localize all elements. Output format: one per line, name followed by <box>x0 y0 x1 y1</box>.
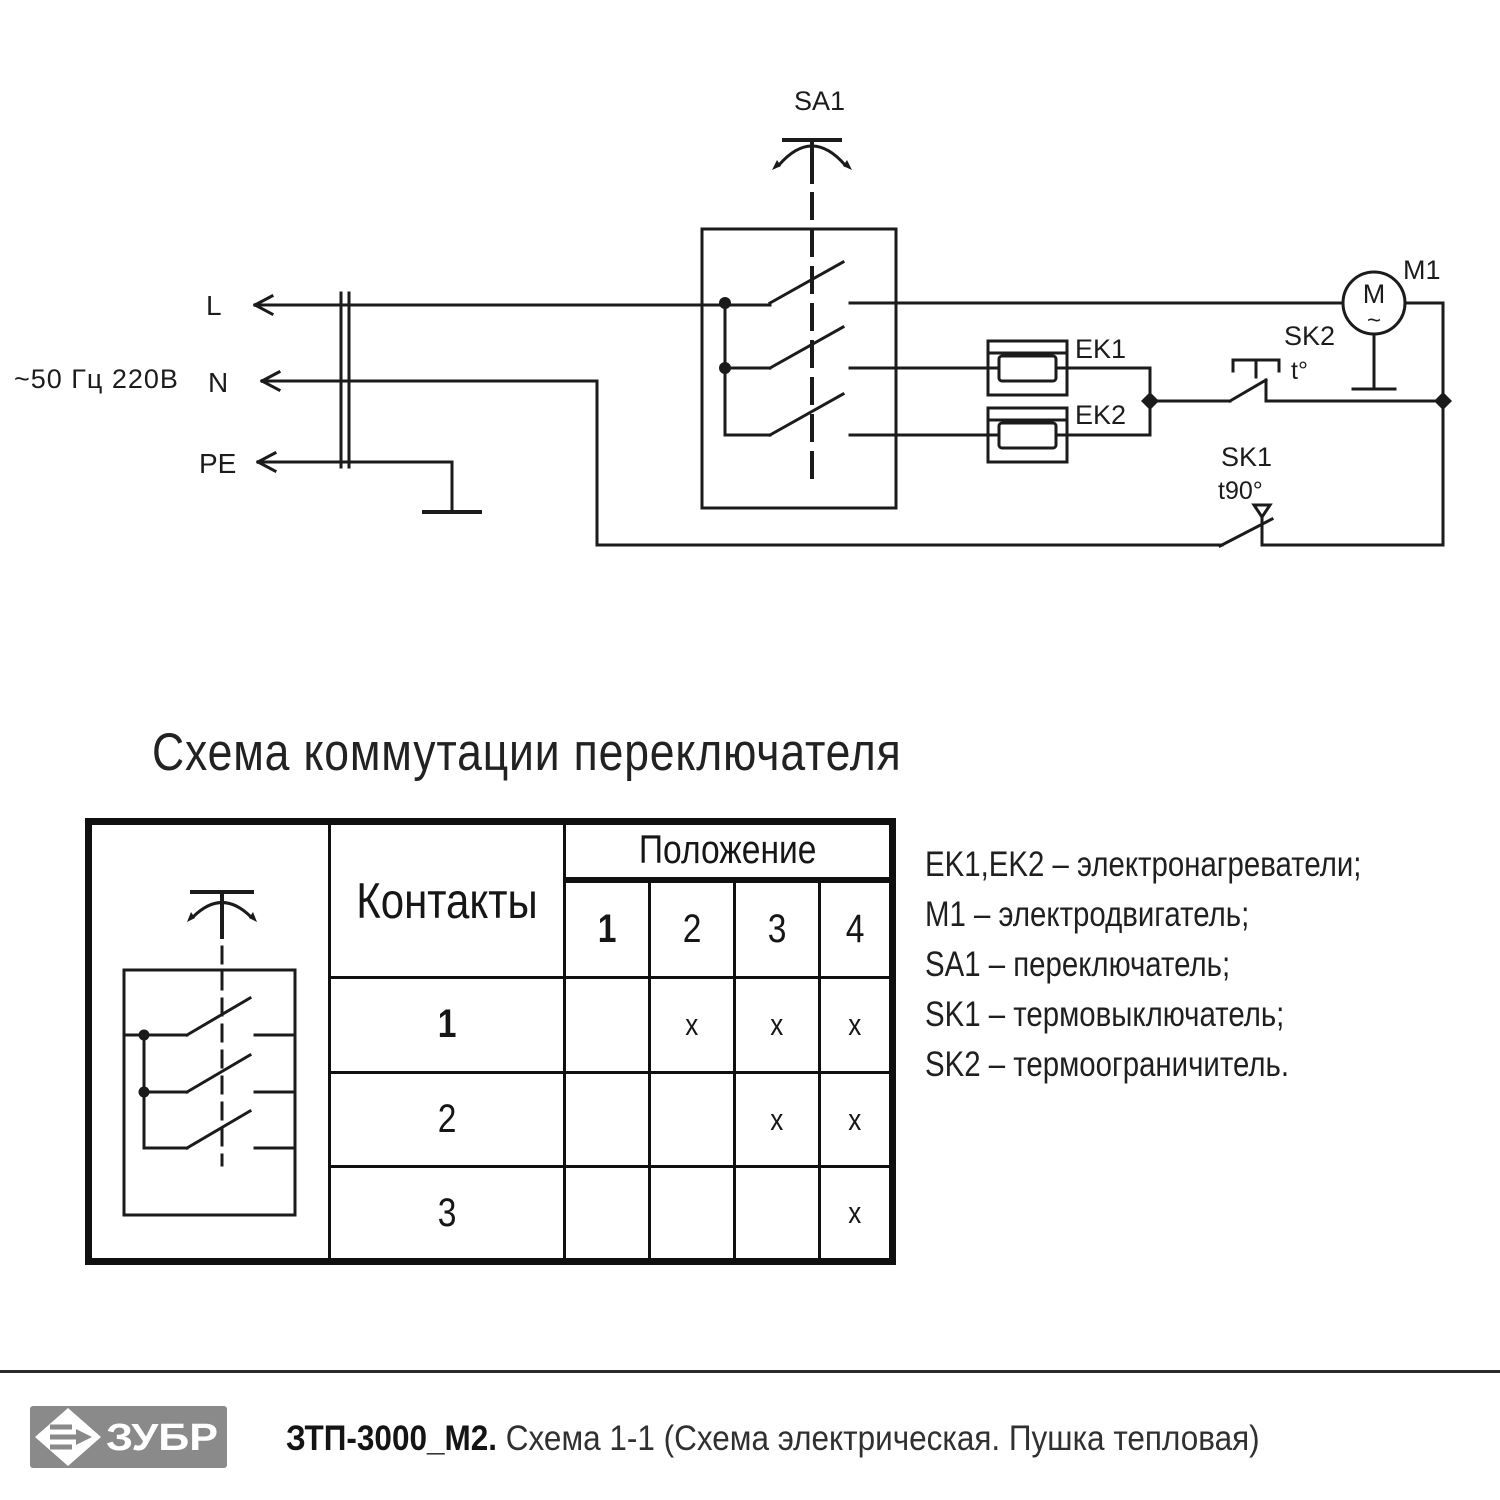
scheme-description: Схема 1-1 (Схема электрическая. Пушка те… <box>506 1419 1260 1458</box>
mark-cell: x <box>820 978 893 1073</box>
motor-ac-sign: ~ <box>1367 307 1381 334</box>
contact-row-label: 2 <box>330 1072 565 1167</box>
mark-cell: x <box>820 1167 893 1262</box>
sk1-temp-label: t90° <box>1218 477 1263 505</box>
legend-item: M1 – электродвигатель; <box>925 890 1445 940</box>
sk1-label: SK1 <box>1221 442 1272 472</box>
junction-right <box>1434 392 1452 410</box>
legend-item: SA1 – переключатель; <box>925 940 1445 990</box>
sk1-contact <box>1220 505 1443 546</box>
mark-cell <box>565 1167 650 1262</box>
mark-cell <box>650 1072 735 1167</box>
position-col-1: 1 <box>565 880 650 978</box>
ek1-label: EK1 <box>1075 334 1126 364</box>
mark-cell: x <box>735 1072 820 1167</box>
mini-switch-symbol <box>92 825 328 1253</box>
legend-item: EK1,EK2 – электронагреватели; <box>925 840 1445 890</box>
mark-cell: x <box>735 978 820 1073</box>
electrical-schematic: ~50 Гц 220В L N PE SA1 EK1 EK2 SK2 t° SK… <box>0 0 1500 710</box>
terminal-pe-label: PE <box>199 448 236 479</box>
commutation-title: Схема коммутации переключателя <box>152 722 1044 783</box>
sa1-contacts <box>719 262 843 435</box>
mark-cell: x <box>820 1072 893 1167</box>
m1-motor-symbol <box>1343 272 1443 389</box>
power-rating-label: ~50 Гц 220В <box>14 364 179 394</box>
model-number: ЗТП-3000_М2. <box>286 1419 497 1458</box>
legend-item: SK1 – термовыключатель; <box>925 990 1445 1040</box>
mark-cell <box>735 1167 820 1262</box>
contacts-header-cell: Контакты <box>330 822 565 978</box>
zubr-brand-text: ЗУБР <box>106 1417 218 1459</box>
mark-cell <box>650 1167 735 1262</box>
position-col-4: 4 <box>820 880 893 978</box>
wire-pe <box>258 462 452 512</box>
mark-cell <box>565 1072 650 1167</box>
sa1-rotation-symbol <box>772 140 852 182</box>
sa1-label: SA1 <box>794 86 845 116</box>
footer-caption: ЗТП-3000_М2. Схема 1-1 (Схема электричес… <box>286 1419 1368 1459</box>
position-header-cell: Положение <box>565 822 893 880</box>
footer-separator <box>0 1370 1500 1373</box>
terminal-l-label: L <box>206 290 222 321</box>
sk2-label: SK2 <box>1284 321 1335 351</box>
terminal-n-label: N <box>208 367 228 398</box>
switch-symbol-cell <box>89 822 330 1262</box>
contact-row-label: 3 <box>330 1167 565 1262</box>
m1-label: M1 <box>1403 255 1441 285</box>
zubr-logo: ЗУБР <box>30 1406 227 1468</box>
mark-cell: x <box>650 978 735 1073</box>
mark-cell <box>565 978 650 1073</box>
sk2-temp-label: t° <box>1291 357 1308 385</box>
position-col-3: 3 <box>735 880 820 978</box>
motor-letter: M <box>1363 279 1386 309</box>
position-col-2: 2 <box>650 880 735 978</box>
legend-item: SK2 – термоограничитель. <box>925 1040 1445 1090</box>
contact-row-label: 1 <box>330 978 565 1073</box>
ek2-label: EK2 <box>1075 400 1126 430</box>
legend: EK1,EK2 – электронагреватели; M1 – элект… <box>925 840 1445 1090</box>
commutation-table: Контакты Положение 1 2 3 4 1 x x x 2 x x <box>85 818 896 1265</box>
